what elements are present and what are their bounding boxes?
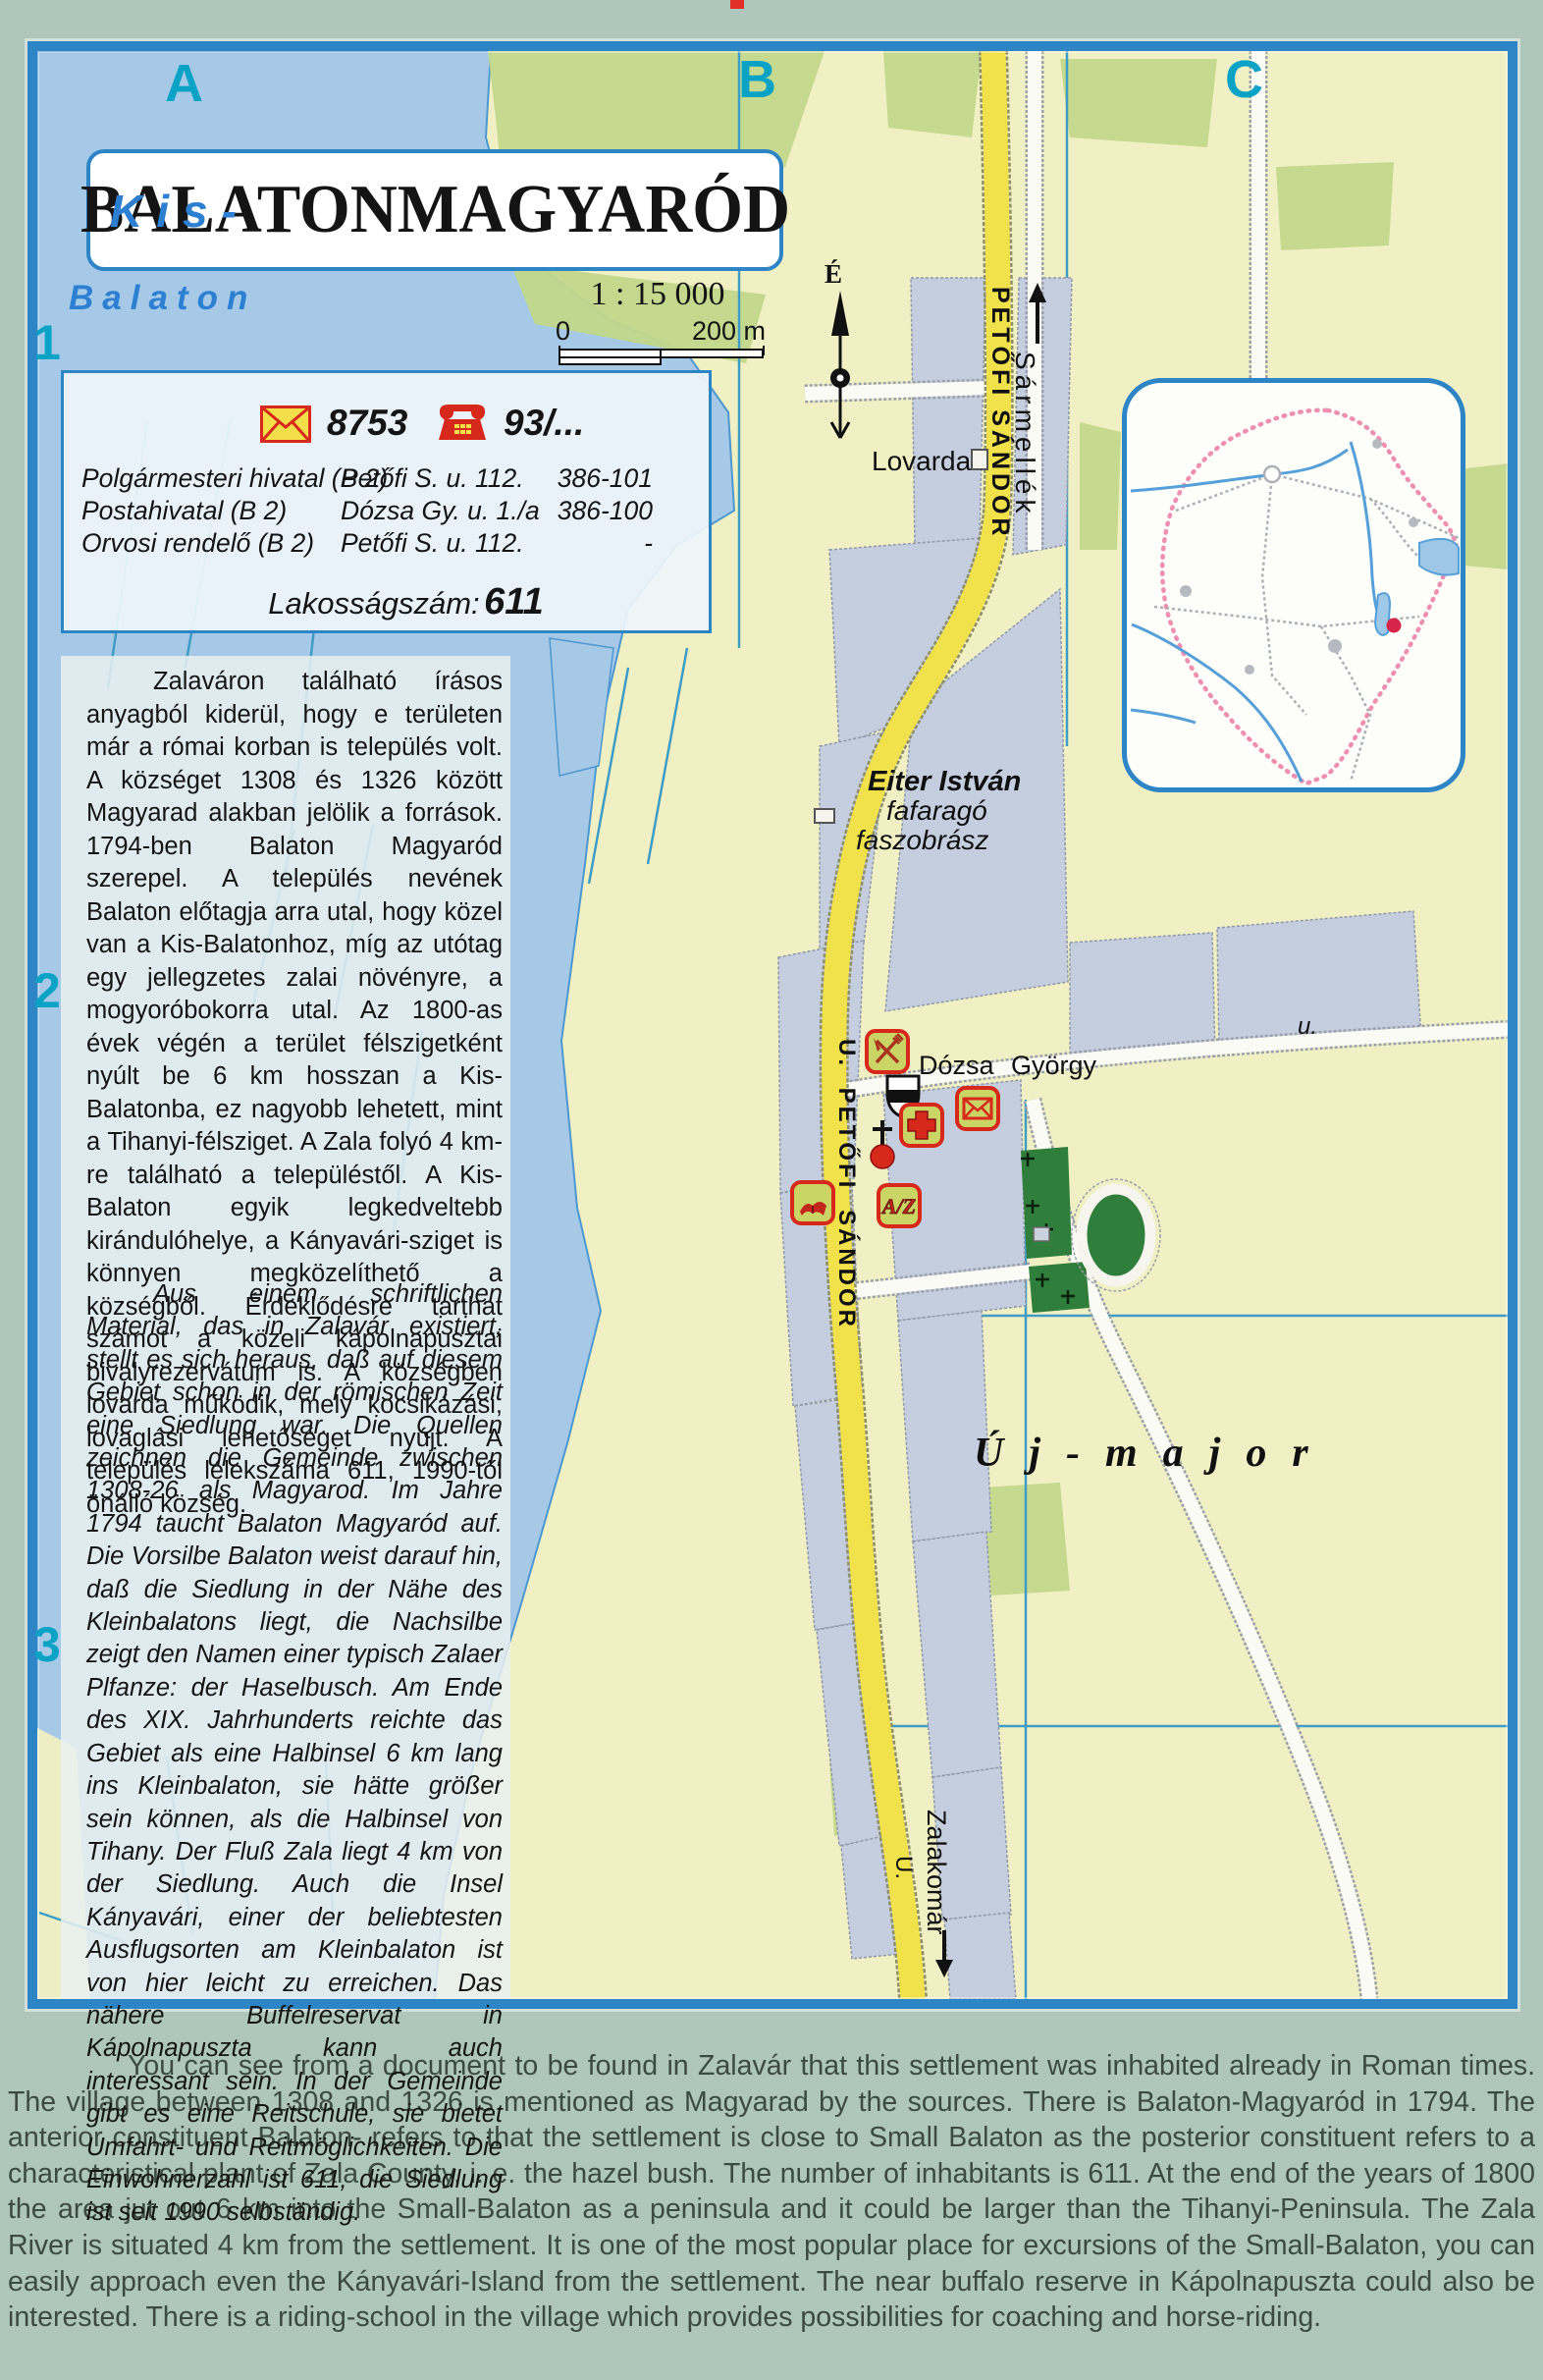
info-row-name: Postahivatal (B 2) bbox=[81, 496, 287, 526]
grid-row-2: 2 bbox=[33, 962, 61, 1019]
label-u: u. bbox=[1298, 1013, 1317, 1041]
info-row-phone: - bbox=[533, 528, 653, 559]
population-label: Lakosságszám: bbox=[268, 586, 479, 621]
scale-bar-start: 0 bbox=[556, 316, 570, 347]
map-scale: 1 : 15 000 bbox=[542, 276, 773, 313]
grid-column-a: A bbox=[165, 53, 203, 114]
library-book-icon bbox=[790, 1180, 835, 1230]
label-uj-major: Új-major bbox=[974, 1430, 1334, 1477]
phone-code: 93/... bbox=[504, 403, 584, 444]
post-office-icon bbox=[955, 1086, 1000, 1136]
phone-icon bbox=[435, 401, 490, 449]
location-dot bbox=[1387, 619, 1402, 633]
grid-row-1: 1 bbox=[33, 314, 61, 371]
atlas-page: A B C 1 2 3 Kis- Balaton BALATONMAGYARÓD… bbox=[0, 0, 1543, 2380]
mail-icon bbox=[260, 406, 311, 448]
grid-row-3: 3 bbox=[33, 1616, 61, 1673]
inset-junction bbox=[1264, 466, 1280, 482]
inset-towns bbox=[1180, 439, 1418, 675]
info-row-name: Orvosi rendelő (B 2) bbox=[81, 528, 314, 559]
info-row-address: Dózsa Gy. u. 1./a bbox=[341, 496, 540, 526]
label-petofi-sandor-north: PETŐFI SÁNDOR bbox=[985, 287, 1014, 540]
inset-rivers bbox=[1131, 442, 1384, 782]
shop-az-icon: A/Z bbox=[877, 1183, 922, 1233]
inset-lake-balaton bbox=[1419, 539, 1459, 575]
german-description: Aus einem schriftlichen Material, das in… bbox=[86, 1278, 503, 2230]
label-zalakomar: Zalakomár bbox=[921, 1810, 951, 1935]
grid-column-b: B bbox=[738, 49, 776, 110]
label-faszobrasz: faszobrász bbox=[856, 825, 988, 856]
postal-code: 8753 bbox=[327, 403, 407, 444]
label-dozsa-gyorgy: Dózsa György bbox=[919, 1051, 1096, 1081]
population-line: Lakosságszám: 611 bbox=[64, 581, 709, 623]
label-fafarago: fafaragó bbox=[886, 795, 987, 827]
north-label: É bbox=[825, 259, 842, 290]
water-label-balaton: Balaton bbox=[69, 279, 256, 318]
info-row-address: Petőfi S. u. 112. bbox=[341, 528, 524, 559]
registration-mark bbox=[730, 0, 744, 9]
doctor-cross-icon bbox=[899, 1103, 944, 1153]
grid-column-c: C bbox=[1225, 49, 1263, 110]
info-row-phone: 386-101 bbox=[533, 463, 653, 494]
info-box: 8753 93/... Polgármesteri hivatal (B 2) … bbox=[61, 370, 712, 633]
label-petofi-sandor-mid: U. PETŐFI SÁNDOR bbox=[832, 1039, 860, 1329]
scale-bar-end: 200 m bbox=[677, 316, 766, 347]
label-zalakomar-u: U. bbox=[889, 1856, 917, 1879]
population-value: 611 bbox=[484, 581, 544, 622]
info-row-address: Petőfi S. u. 112. bbox=[341, 463, 524, 494]
label-lovarda: Lovarda bbox=[872, 446, 971, 477]
building bbox=[815, 809, 834, 823]
info-row-phone: 386-100 bbox=[533, 496, 653, 526]
restaurant-icon bbox=[865, 1029, 910, 1079]
water-label-kis: Kis- bbox=[110, 185, 250, 238]
county-inset-map bbox=[1122, 378, 1465, 792]
label-eiter-istvan: Eiter István bbox=[868, 766, 1021, 798]
county-boundary bbox=[1162, 410, 1457, 784]
az-icon-text: A/Z bbox=[880, 1194, 916, 1218]
